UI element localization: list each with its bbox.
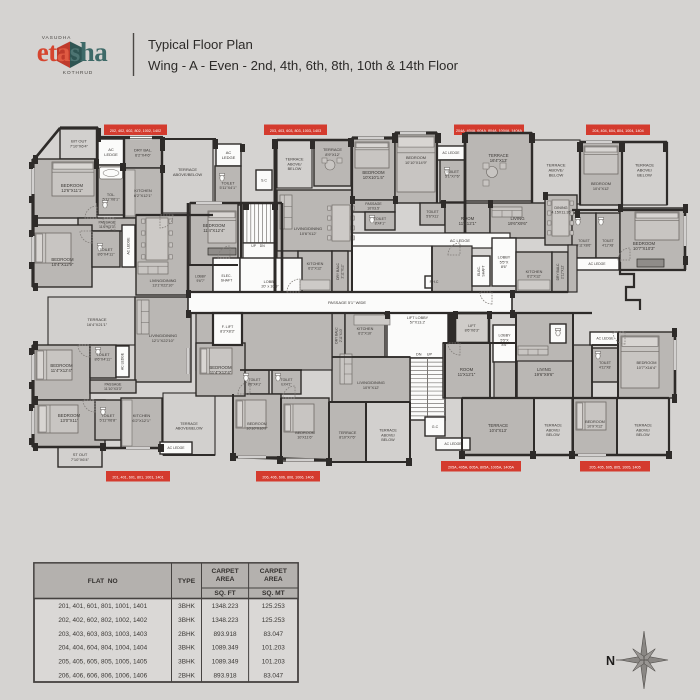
svg-text:BEDROOM10'10"X10'9": BEDROOM10'10"X10'9" <box>246 422 268 431</box>
svg-text:AREA: AREA <box>264 576 283 583</box>
svg-text:BEDROOM12'6"X11'1": BEDROOM12'6"X11'1" <box>61 183 84 193</box>
svg-text:SQ. MT: SQ. MT <box>262 590 285 597</box>
svg-text:AREA: AREA <box>216 576 235 583</box>
svg-text:TERRACEABOVE/BELOW: TERRACEABOVE/BELOW <box>634 424 652 437</box>
svg-text:1348.223: 1348.223 <box>212 603 239 610</box>
svg-text:ROOM11'X12'1": ROOM11'X12'1" <box>459 216 477 226</box>
svg-text:PASSAGE11'6"X3'3": PASSAGE11'6"X3'3" <box>99 220 117 229</box>
svg-text:F.H.C: F.H.C <box>430 280 439 284</box>
svg-text:TOILET4'11"X8': TOILET4'11"X8' <box>602 239 614 247</box>
svg-text:S.C: S.C <box>261 178 267 182</box>
svg-text:DRY BALC2'11"X10': DRY BALC2'11"X10' <box>335 327 343 344</box>
svg-text:2BHK: 2BHK <box>178 631 195 638</box>
svg-text:G.C: G.C <box>432 425 439 429</box>
svg-text:Typical Floor Plan: Typical Floor Plan <box>148 37 253 52</box>
svg-text:KITCHEN6'2"X10': KITCHEN6'2"X10' <box>357 327 374 336</box>
svg-text:1089.349: 1089.349 <box>212 645 239 652</box>
svg-text:BEDROOM13'0"X11': BEDROOM13'0"X11' <box>58 413 81 423</box>
svg-text:83.047: 83.047 <box>264 673 284 680</box>
svg-text:TOILET8'X4'1": TOILET8'X4'1" <box>374 217 387 226</box>
svg-text:BEDROOM10'7"X16'4": BEDROOM10'7"X16'4" <box>636 360 657 370</box>
svg-text:TOILET5'11"X6'8": TOILET5'11"X6'8" <box>100 414 118 423</box>
svg-text:PASSAGE11'10"X3'3": PASSAGE11'10"X3'3" <box>104 382 123 391</box>
svg-text:2BHK: 2BHK <box>178 673 195 680</box>
svg-text:203, 403, 603, 803, 1003, 1403: 203, 403, 603, 803, 1003, 1403 <box>58 631 147 638</box>
svg-text:ROOM11'X12'1": ROOM11'X12'1" <box>458 367 476 377</box>
svg-text:BEDROOM10'10"X14'9": BEDROOM10'10"X14'9" <box>405 155 428 165</box>
svg-text:DRY BALC2'11"X12': DRY BALC2'11"X12' <box>336 263 344 280</box>
svg-text:BEDROOM10'9"X12': BEDROOM10'9"X12' <box>585 420 605 429</box>
svg-text:SQ. FT: SQ. FT <box>214 590 235 597</box>
svg-text:ST OUT7'10"X6'4": ST OUT7'10"X6'4" <box>71 452 90 462</box>
svg-text:DRY BALC2'11"X12': DRY BALC2'11"X12' <box>556 263 564 280</box>
svg-text:TERRACE16'4"X21'1": TERRACE16'4"X21'1" <box>87 317 108 327</box>
svg-text:TERRACE8'10"X7'6": TERRACE8'10"X7'6" <box>339 431 357 440</box>
svg-text:AC LEDGE: AC LEDGE <box>450 238 471 243</box>
svg-text:BEDROOM10'X10'1.5": BEDROOM10'X10'1.5" <box>362 170 385 180</box>
svg-text:BEDROOM11'4"X12'4": BEDROOM11'4"X12'4" <box>50 363 73 373</box>
svg-text:PASSAGE 5'1" WIDE: PASSAGE 5'1" WIDE <box>328 300 366 305</box>
svg-text:TOILET8'6"X4'1": TOILET8'6"X4'1" <box>248 378 262 386</box>
svg-text:101.203: 101.203 <box>262 659 286 666</box>
svg-text:TERRACE16'4"X13': TERRACE16'4"X13' <box>488 153 508 163</box>
svg-text:KITCHEN6'2"X12'1": KITCHEN6'2"X12'1" <box>134 188 153 198</box>
svg-text:BEDROOM10'4"X12': BEDROOM10'4"X12' <box>591 181 611 191</box>
svg-text:BEDROOM10'X11'6": BEDROOM10'X11'6" <box>295 431 315 440</box>
svg-text:BEDROOM11'4"X12'4": BEDROOM11'4"X12'4" <box>209 365 232 375</box>
svg-text:UP DN: UP DN <box>251 244 265 248</box>
svg-text:101.203: 101.203 <box>262 645 286 652</box>
svg-text:TERRACEABOVE/BELOW: TERRACEABOVE/BELOW <box>544 424 562 437</box>
svg-text:205A, 405A, 605A, 805A, 1005A,: 205A, 405A, 605A, 805A, 1005A, 1405A <box>448 465 515 469</box>
svg-text:125.253: 125.253 <box>262 603 286 610</box>
svg-text:KOTHRUD: KOTHRUD <box>63 70 93 76</box>
svg-text:TERRACEABOVE/BELOW: TERRACEABOVE/BELOW <box>635 162 654 177</box>
svg-text:3BHK: 3BHK <box>178 659 195 666</box>
svg-text:AC LEDGE: AC LEDGE <box>596 337 614 341</box>
svg-text:TERRACEABOVE/BELOW: TERRACEABOVE/BELOW <box>546 162 565 177</box>
svg-text:DN UP: DN UP <box>416 352 433 356</box>
svg-text:TOILET5'1"X7'6": TOILET5'1"X7'6" <box>445 170 461 179</box>
svg-text:KITCHEN6'2"X12': KITCHEN6'2"X12' <box>307 262 324 271</box>
svg-text:205, 405, 605, 805, 1005, 1405: 205, 405, 605, 805, 1005, 1405 <box>589 465 640 469</box>
svg-text:3BHK: 3BHK <box>178 603 195 610</box>
svg-text:TERRACE8'9"X12': TERRACE8'9"X12' <box>323 147 342 157</box>
svg-text:etasha: etasha <box>37 37 109 67</box>
svg-text:AC LEDGE: AC LEDGE <box>588 262 606 266</box>
svg-text:F. LIFT8'3"X8'3": F. LIFT8'3"X8'3" <box>220 325 235 334</box>
svg-text:AC LEDGE: AC LEDGE <box>121 352 125 370</box>
svg-text:893.918: 893.918 <box>213 631 237 638</box>
svg-text:CARPET: CARPET <box>260 568 287 575</box>
svg-text:KITCHEN6'2"X12': KITCHEN6'2"X12' <box>526 270 543 279</box>
svg-text:DRY BAL.6'2"X4'6": DRY BAL.6'2"X4'6" <box>134 147 152 157</box>
svg-text:1089.349: 1089.349 <box>212 659 239 666</box>
svg-text:ELEC.SHAFT: ELEC.SHAFT <box>477 265 485 276</box>
svg-text:AC LEDGE: AC LEDGE <box>167 446 185 450</box>
svg-text:83.047: 83.047 <box>264 631 284 638</box>
svg-text:TERRACE10'4"X13': TERRACE10'4"X13' <box>488 423 508 433</box>
svg-text:BEDROOM10'7"X10'3": BEDROOM10'7"X10'3" <box>633 241 656 251</box>
svg-text:201, 401, 601, 801, 1001, 1401: 201, 401, 601, 801, 1001, 1401 <box>58 603 147 610</box>
svg-text:BEDROOM11'4"X12'4": BEDROOM11'4"X12'4" <box>203 223 226 233</box>
svg-text:205, 405, 605, 805, 1005, 1405: 205, 405, 605, 805, 1005, 1405 <box>58 659 147 666</box>
svg-text:206, 406, 606, 806, 1006, 1406: 206, 406, 606, 806, 1006, 1406 <box>58 673 147 680</box>
svg-text:3BHK: 3BHK <box>178 617 195 624</box>
svg-text:TOILETEX4'1": TOILETEX4'1" <box>281 378 293 386</box>
svg-text:202, 402, 602, 802, 1002, 1402: 202, 402, 602, 802, 1002, 1402 <box>110 129 161 133</box>
svg-text:VASUDHA: VASUDHA <box>42 35 72 41</box>
svg-text:AC LEDGE: AC LEDGE <box>444 442 462 446</box>
svg-text:AC LEDGE: AC LEDGE <box>127 237 131 255</box>
svg-text:TOILET5'6"X11': TOILET5'6"X11' <box>426 210 439 219</box>
svg-text:Wing - A - Even - 2nd, 4th, 6t: Wing - A - Even - 2nd, 4th, 6th, 8th, 10… <box>148 58 459 73</box>
svg-text:FLAT NO: FLAT NO <box>88 578 118 585</box>
svg-text:125.253: 125.253 <box>262 617 286 624</box>
svg-text:TYPE: TYPE <box>178 578 196 585</box>
svg-text:CARPET: CARPET <box>211 568 238 575</box>
svg-text:204, 404, 604, 804, 1004, 1404: 204, 404, 604, 804, 1004, 1404 <box>58 645 147 652</box>
svg-text:204, 404, 604, 804, 1004, 1404: 204, 404, 604, 804, 1004, 1404 <box>592 129 643 133</box>
svg-text:BIT OUT7'10"X6'4": BIT OUT7'10"X6'4" <box>70 138 89 148</box>
svg-text:TOILET5'11"X4'1": TOILET5'11"X4'1" <box>220 181 238 190</box>
svg-text:TERRACEABOVE/BELOW: TERRACEABOVE/BELOW <box>379 429 397 442</box>
svg-text:TOILET4'11"X8': TOILET4'11"X8' <box>599 361 611 369</box>
svg-text:N: N <box>606 654 615 668</box>
svg-text:206, 406, 606, 806, 1006, 1406: 206, 406, 606, 806, 1006, 1406 <box>262 475 313 479</box>
svg-text:KITCHEN6'2"X12'1": KITCHEN6'2"X12'1" <box>132 413 151 423</box>
svg-text:TERRACEABOVE/BELOW: TERRACEABOVE/BELOW <box>285 158 304 172</box>
svg-text:LIVING/DINING13'1"X22'10": LIVING/DINING13'1"X22'10" <box>150 279 177 288</box>
svg-text:3BHK: 3BHK <box>178 645 195 652</box>
svg-text:AC LEDGE: AC LEDGE <box>442 151 460 155</box>
svg-text:LIVING/DINING12'1"X22'10": LIVING/DINING12'1"X22'10" <box>149 333 177 343</box>
svg-text:202, 402, 602, 802, 1002, 1402: 202, 402, 602, 802, 1002, 1402 <box>58 617 147 624</box>
svg-text:TOILET8'6"X4'11": TOILET8'6"X4'11" <box>98 248 116 257</box>
svg-text:893.918: 893.918 <box>213 673 237 680</box>
svg-text:BEDROOM10'4"X12'9": BEDROOM10'4"X12'9" <box>51 257 74 267</box>
svg-text:1348.223: 1348.223 <box>212 617 239 624</box>
svg-text:TOILET8'6"X4'11": TOILET8'6"X4'11" <box>95 353 113 362</box>
svg-text:ELEC.SHAFT: ELEC.SHAFT <box>221 274 233 283</box>
svg-text:203, 403, 603, 803, 1003, 1403: 203, 403, 603, 803, 1003, 1403 <box>270 129 321 133</box>
svg-text:201, 401, 601, 801, 1001, 1401: 201, 401, 601, 801, 1001, 1401 <box>112 475 163 479</box>
